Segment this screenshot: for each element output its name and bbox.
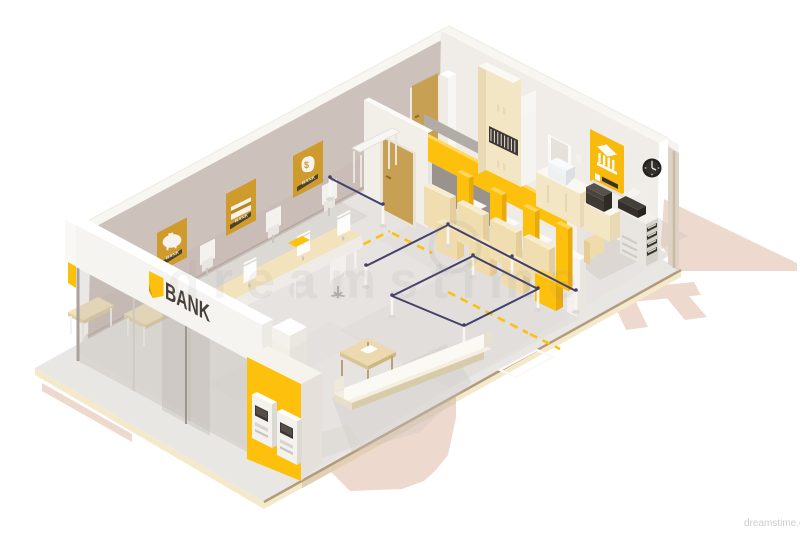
svg-text:$: $	[304, 160, 309, 170]
svg-text:dreamstime.com: dreamstime.com	[744, 518, 800, 529]
svg-text:dreamstime: dreamstime	[168, 252, 590, 310]
